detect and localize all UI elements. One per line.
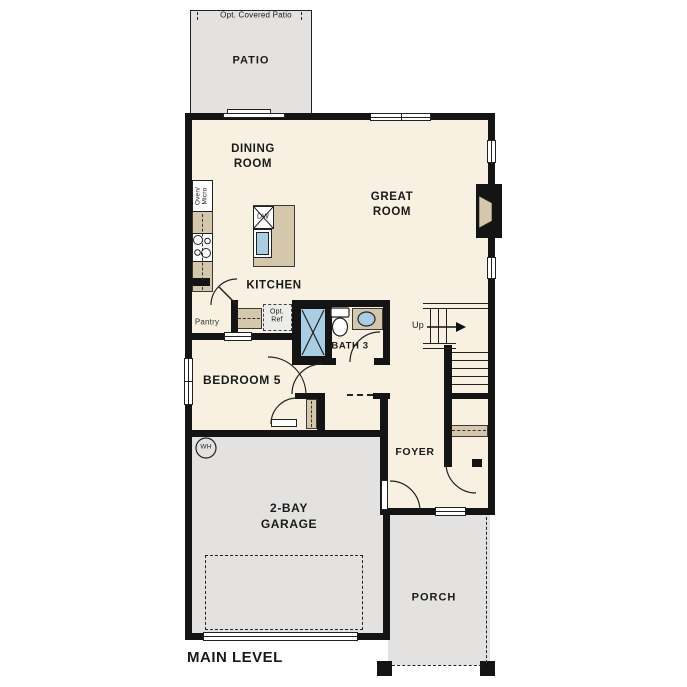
- stair-tread: [446, 308, 447, 344]
- cased-opening: [224, 332, 252, 341]
- fireplace: [476, 184, 502, 238]
- room-label-bedroom5: BEDROOM 5: [203, 373, 281, 389]
- wall: [374, 358, 390, 365]
- door-leaf: [271, 419, 297, 427]
- water-heater-label: WH: [200, 444, 211, 453]
- porch-post: [377, 661, 392, 676]
- plan-title: MAIN LEVEL: [187, 649, 283, 666]
- window: [487, 257, 496, 279]
- patio-corner-mark: [197, 12, 198, 20]
- stairs-up-label: Up: [412, 320, 424, 332]
- oven-micro-label: Oven/ Micro: [195, 187, 210, 205]
- wall: [292, 300, 390, 307]
- window: [184, 358, 193, 405]
- wall: [383, 300, 390, 365]
- wall: [472, 459, 482, 467]
- optional-ref-label: Opt. Ref: [270, 309, 284, 326]
- room-label-bath3: BATH 3: [331, 341, 368, 354]
- wall: [444, 345, 452, 467]
- wall: [185, 278, 210, 286]
- pantry-counter-dash: [238, 318, 260, 319]
- room-label-garage: 2-BAY GARAGE: [261, 501, 317, 533]
- patio-corner-mark: [301, 12, 302, 20]
- garage-door: [203, 632, 358, 641]
- room-label-porch: PORCH: [412, 591, 457, 606]
- stair-rail: [423, 343, 456, 344]
- front-door: [435, 507, 466, 516]
- wall: [373, 393, 390, 399]
- door-leaf: [381, 480, 388, 510]
- foyer-closet-shelf: [450, 425, 488, 437]
- bath-sink-counter: [352, 308, 383, 330]
- wall: [488, 113, 495, 515]
- stair-tread: [452, 360, 488, 361]
- stair-tread: [430, 308, 431, 344]
- sliding-door: [223, 113, 285, 118]
- island-sink-icon: [256, 232, 269, 255]
- stair-tread: [438, 308, 439, 344]
- wall: [185, 430, 387, 437]
- room-label-pantry: Pantry: [195, 318, 219, 329]
- wall: [292, 300, 299, 365]
- stair-tread: [452, 376, 488, 377]
- floor-plan: Opt. Covered Patio PATIO DINING ROOM GRE…: [0, 0, 687, 687]
- stair-tread: [452, 352, 488, 353]
- room-label-patio: PATIO: [233, 54, 270, 69]
- wall: [325, 305, 332, 362]
- garage-parking-outline: [205, 555, 363, 630]
- porch-edge-dash: [486, 517, 487, 663]
- stair-tread: [452, 384, 488, 385]
- patio-option-label: Opt. Covered Patio: [220, 11, 292, 22]
- dishwasher-label: DW: [257, 212, 269, 221]
- window: [487, 140, 496, 163]
- wall: [231, 300, 238, 333]
- porch-post: [480, 661, 495, 676]
- room-label-dining: DINING ROOM: [231, 142, 275, 172]
- closet-rod-dash: [311, 401, 312, 427]
- closet-header-dash: [347, 394, 373, 396]
- porch-edge-dash: [392, 665, 482, 666]
- window: [370, 113, 431, 121]
- stair-rail: [423, 303, 488, 304]
- wall: [383, 515, 390, 640]
- wall: [317, 399, 325, 430]
- stair-rail: [423, 308, 488, 309]
- stair-tread: [452, 368, 488, 369]
- wall: [444, 393, 495, 399]
- room-label-kitchen: KITCHEN: [246, 278, 301, 293]
- foyer-closet-rod-dash: [452, 430, 486, 431]
- room-label-great-room: GREAT ROOM: [371, 190, 413, 220]
- shower-icon: [299, 307, 327, 358]
- room-label-foyer: FOYER: [395, 446, 434, 460]
- stair-rail: [423, 348, 456, 349]
